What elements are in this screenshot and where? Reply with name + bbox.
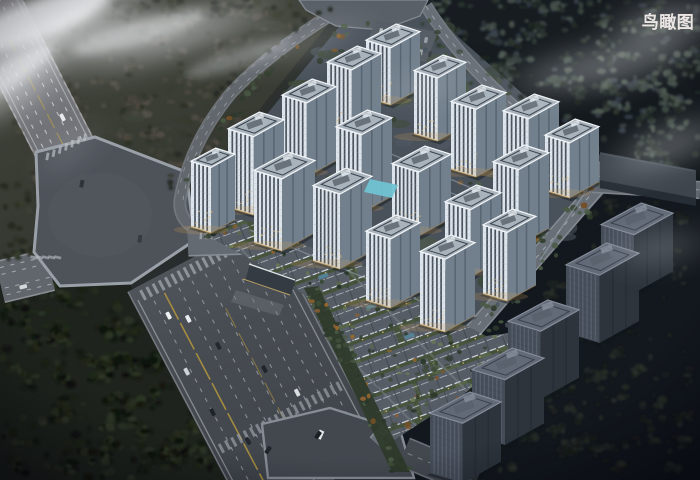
svg-text:鸟瞰图: 鸟瞰图 [642,12,695,32]
